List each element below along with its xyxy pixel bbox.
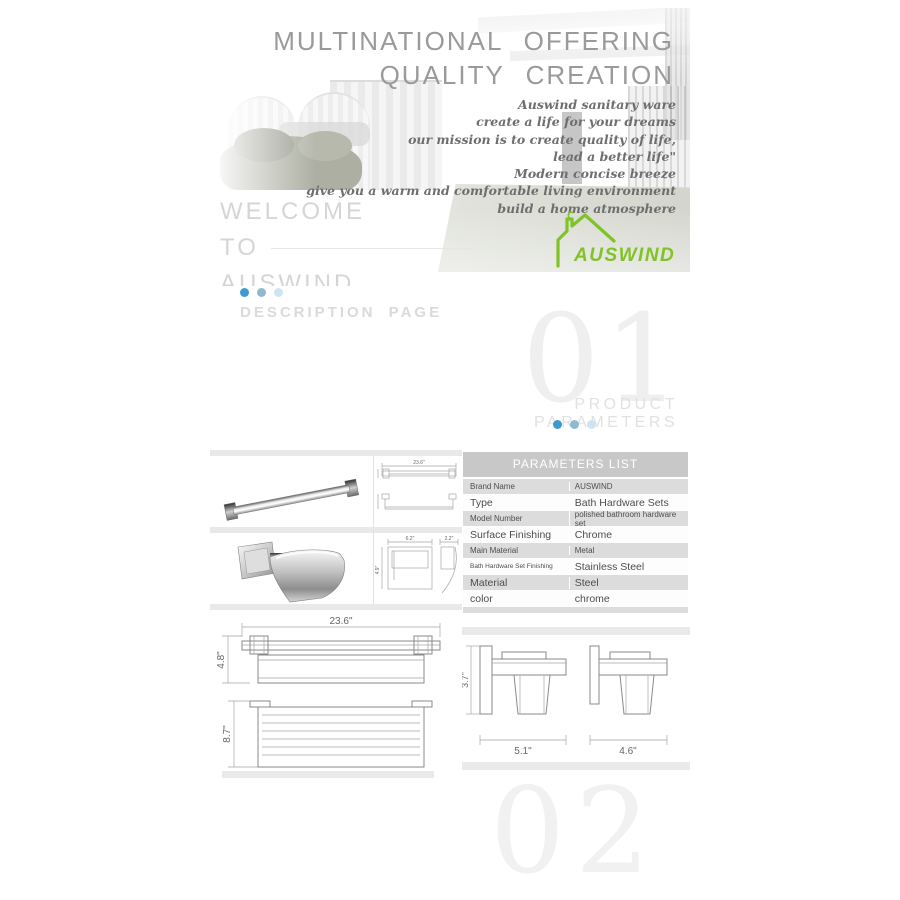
param-value: Metal	[569, 546, 688, 555]
param-value: polished bathroom hardware set	[569, 510, 688, 528]
paper-holder-shape	[238, 542, 345, 602]
headline-line-2: QUALITY CREATION	[273, 58, 674, 92]
towel-bar-photo	[210, 456, 373, 527]
param-label: Model Number	[463, 514, 569, 523]
description-page-label: DESCRIPTION PAGE	[240, 304, 442, 321]
dim-label: 3.7"	[462, 672, 470, 688]
parameters-table-header: PARAMETERS LIST	[463, 452, 688, 477]
param-value: Chrome	[569, 529, 688, 541]
dim-label: 4.6"	[619, 746, 637, 757]
dot-icon	[553, 420, 562, 429]
description-page: MULTINATIONAL OFFERING QUALITY CREATION …	[0, 0, 900, 900]
banner: MULTINATIONAL OFFERING QUALITY CREATION …	[210, 8, 690, 286]
welcome-line-1: WELCOME	[220, 194, 476, 230]
towel-bar-shape	[224, 479, 359, 520]
section-02-watermark: 02	[490, 772, 660, 890]
dim-label: 23.6"	[329, 616, 352, 627]
param-label: Surface Finishing	[463, 529, 569, 541]
dot-icon	[240, 288, 249, 297]
towel-bar-drawing: 23.6"	[374, 456, 462, 527]
dim-label: 4.9"	[375, 565, 381, 574]
welcome-text: WELCOME TO AUSWIND	[220, 194, 476, 286]
table-row: Bath Hardware Set Finishing Stainless St…	[463, 559, 688, 574]
dim-label: 2.2"	[445, 536, 454, 542]
headline-line-1: MULTINATIONAL OFFERING	[273, 24, 674, 58]
slogan-line: our mission is to create quality of life…	[306, 131, 676, 148]
param-label: Type	[463, 497, 569, 509]
slogan-line: Auswind sanitary ware	[306, 96, 676, 113]
dim-label: 8.7"	[222, 725, 233, 743]
shelf-dimension-drawing: 23.6" 4.8" 8.7"	[212, 615, 470, 779]
param-label: Bath Hardware Set Finishing	[463, 563, 569, 570]
param-label: color	[463, 593, 569, 605]
divider	[210, 604, 462, 610]
auswind-logo: AUSWIND	[546, 210, 678, 272]
table-row: Model Number polished bathroom hardware …	[463, 511, 688, 526]
pager-dots	[240, 288, 442, 297]
pager-block: DESCRIPTION PAGE	[240, 288, 442, 321]
table-row: Main Material Metal	[463, 543, 688, 558]
logo-wordmark: AUSWIND	[573, 245, 675, 266]
paper-holder-photo	[210, 533, 373, 604]
welcome-line-2: TO	[220, 230, 259, 266]
table-row: Brand Name AUSWIND	[463, 479, 688, 494]
banner-headline: MULTINATIONAL OFFERING QUALITY CREATION	[273, 24, 674, 93]
product-image-panel: 23.6"	[210, 450, 462, 610]
param-label: Brand Name	[463, 482, 569, 491]
divider	[462, 627, 690, 635]
table-row: Type Bath Hardware Sets	[463, 495, 688, 510]
side-view-drawing: 3.7" 5.1" 4.6"	[462, 622, 690, 772]
divider	[222, 771, 434, 778]
dim-label: 23.6"	[413, 460, 425, 466]
dim-label: 5.1"	[514, 746, 532, 757]
slogan-line: lead a better life"	[306, 148, 676, 165]
param-value: Steel	[569, 577, 688, 589]
dot-icon	[570, 420, 579, 429]
table-row: Material Steel	[463, 575, 688, 590]
dot-icon	[587, 420, 596, 429]
table-row: color chrome	[463, 591, 688, 606]
welcome-line-3: AUSWIND	[220, 266, 476, 286]
dim-label: 4.8"	[216, 651, 227, 669]
param-value: Stainless Steel	[569, 561, 688, 573]
slogan-line: Modern concise breeze	[306, 165, 676, 182]
table-row: Surface Finishing Chrome	[463, 527, 688, 542]
dot-icon	[257, 288, 266, 297]
param-label: Main Material	[463, 546, 569, 555]
dot-icon	[274, 288, 283, 297]
dim-label: 6.2"	[406, 536, 415, 542]
param-value: Bath Hardware Sets	[569, 497, 688, 509]
welcome-divider-line	[271, 248, 476, 249]
param-label: Material	[463, 577, 569, 589]
param-value: AUSWIND	[569, 482, 688, 491]
slogan-line: create a life for your dreams	[306, 113, 676, 130]
paper-holder-drawing: 6.2" 4.9" 2.2"	[374, 533, 462, 604]
param-value: chrome	[569, 593, 688, 605]
section-01-dots	[553, 420, 596, 429]
logo-sprout-icon	[568, 212, 573, 218]
table-footer-strip	[463, 607, 688, 613]
parameters-table: PARAMETERS LIST Brand Name AUSWIND Type …	[463, 452, 688, 613]
